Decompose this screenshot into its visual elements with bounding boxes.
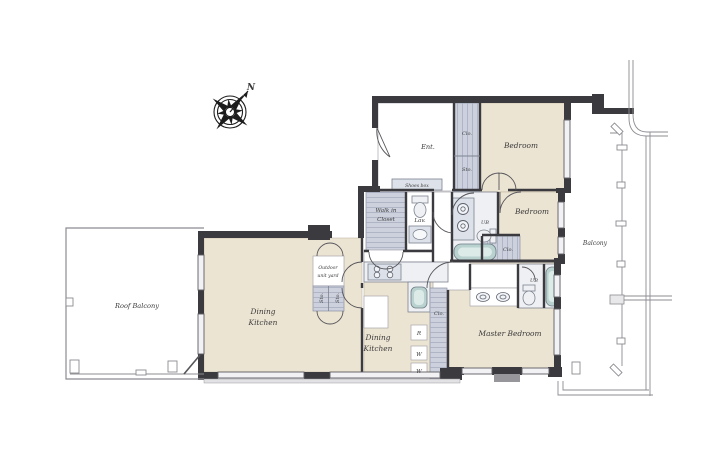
lav-basin-icon	[413, 230, 427, 240]
walk-in-label-1: Walk in	[376, 208, 397, 214]
floor-plan-svg: N Ent. Clo. Sto. Bedroom Shoes box Walk …	[0, 0, 723, 450]
ub-mid-label: UB	[481, 220, 489, 226]
shoes-box-label: Shoes box	[405, 183, 429, 189]
toilet-icon-master	[523, 285, 535, 305]
bottom-step	[494, 374, 520, 382]
walk-in-label-2: Closet	[377, 217, 396, 223]
bedroom2-label: Bedroom	[514, 207, 549, 216]
balcony-label: Balcony	[582, 240, 608, 247]
dining-kitchen-center-label-2: Kitchen	[363, 344, 393, 353]
hall-closet-label: Clo.	[462, 131, 472, 137]
dining-kitchen-left-label-2: Kitchen	[248, 318, 278, 327]
entrance-label: Ent.	[420, 143, 435, 151]
kitchen-island	[364, 296, 388, 328]
outdoor-yard-label-1: Outdoor	[318, 265, 338, 271]
bedroom1-label: Bedroom	[503, 141, 538, 150]
bedroom2-closet-label: Clo.	[503, 247, 513, 253]
roof-balcony-diagonal	[184, 355, 200, 374]
yard-storage-label-1: Sto.	[319, 293, 325, 303]
hall-closet-hatch	[454, 103, 480, 191]
yard-storage-label-2: Sto.	[335, 293, 341, 303]
compass-rose: N	[199, 81, 261, 143]
dining-kitchen-center-label-1: Dining	[365, 333, 391, 342]
master-bath-entry	[470, 264, 518, 288]
master-bedroom-label: Master Bedroom	[478, 329, 542, 338]
master-closet-label: Clo.	[434, 311, 444, 317]
dining-kitchen-left-label-1: Dining	[250, 307, 276, 316]
corridor	[433, 192, 452, 262]
roof-balcony-label: Roof Balcony	[114, 302, 159, 310]
bathtub-inner-mid	[458, 248, 492, 257]
hall-storage-label: Sto.	[462, 167, 472, 173]
refrigerator-label: R	[416, 331, 421, 337]
lavatory-label: Lav.	[413, 218, 426, 224]
outdoor-unit-yard-box	[313, 256, 344, 286]
ub-master-label: UB	[530, 278, 538, 284]
north-label: N	[246, 83, 256, 93]
floor-plan: N Ent. Clo. Sto. Bedroom Shoes box Walk …	[0, 0, 723, 450]
room-entrance	[378, 103, 454, 191]
stove	[368, 264, 401, 280]
outdoor-yard-label-2: unit yard	[317, 273, 338, 279]
master-closet-hatch	[430, 288, 447, 379]
kitchen-sink-inner	[414, 290, 424, 305]
